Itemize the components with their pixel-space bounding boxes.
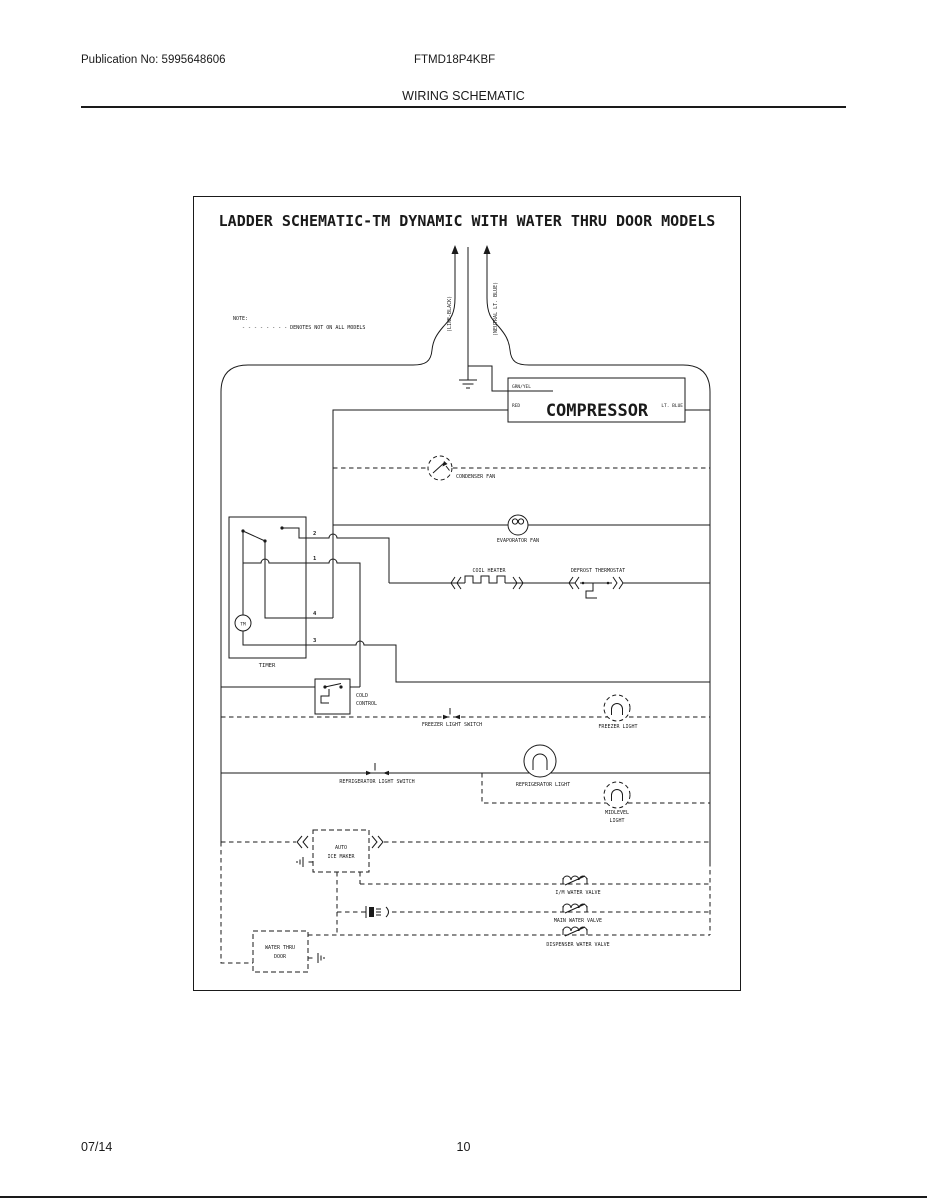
timer-box — [229, 517, 306, 658]
water-thru-door-label-1: WATER THRU — [265, 945, 295, 951]
switch-arrow-icon — [366, 771, 372, 775]
left-rail-dashed — [221, 842, 253, 963]
capillary-icon — [321, 689, 329, 703]
diagram-frame — [194, 197, 741, 991]
neutral-feed-label: (NEUTRAL LT. BLUE) — [493, 282, 499, 336]
note: NOTE: - - - - - - - - DENOTES NOT ON ALL… — [233, 316, 365, 331]
main-water-valve: MAIN WATER VALVE — [337, 904, 710, 924]
line-feed-wire — [221, 251, 455, 392]
note-text: - - - - - - - - DENOTES NOT ON ALL MODEL… — [242, 325, 365, 331]
midlevel-light-label-1: MIDLEVEL — [605, 810, 629, 816]
header-rule — [81, 106, 846, 108]
wiring-schematic-diagram: LADDER SCHEMATIC-TM DYNAMIC WITH WATER T… — [193, 196, 741, 991]
condenser-fan-motor-icon — [428, 456, 452, 480]
condenser-fan: CONDENSER FAN — [333, 456, 710, 480]
im-water-valve: I/M WATER VALVE — [360, 876, 710, 896]
cold-control-label-2: CONTROL — [356, 701, 377, 707]
water-thru-door-label-2: DOOR — [274, 954, 287, 960]
ice-maker-circuit: AUTO ICE MAKER — [221, 830, 710, 935]
plug-connector-icon — [366, 906, 389, 918]
water-thru-door: WATER THRU DOOR — [253, 931, 324, 972]
lt-blue-label: LT. BLUE — [661, 403, 683, 409]
cold-control: COLD CONTROL — [221, 679, 377, 714]
diagram-title: LADDER SCHEMATIC-TM DYNAMIC WITH WATER T… — [219, 212, 716, 230]
valve-coil-icon — [563, 876, 587, 885]
refrigerator-light-lamp-icon — [524, 745, 556, 777]
note-label: NOTE: — [233, 316, 248, 322]
main-valve-label: MAIN WATER VALVE — [554, 918, 602, 924]
page-number: 10 — [0, 1140, 927, 1154]
cold-control-label-1: COLD — [356, 693, 368, 699]
cold-control-arm — [325, 684, 341, 688]
neutral-feed-wire — [487, 251, 710, 392]
model-number: FTMD18P4KBF — [414, 54, 495, 66]
terminal-3: 3 — [313, 638, 316, 644]
connector-icon — [613, 577, 623, 589]
cold-control-dot — [339, 685, 342, 688]
timer-line-2 — [282, 528, 389, 583]
midlevel-light-lamp-icon — [604, 782, 630, 808]
midlevel-light-label-2: LIGHT — [609, 818, 624, 824]
page-bottom-edge — [0, 1196, 927, 1198]
switch-arrow-icon — [383, 771, 389, 775]
refrigerator-light-switch-label: REFRIGERATOR LIGHT SWITCH — [339, 779, 414, 785]
switch-arrow-icon — [443, 715, 449, 719]
switch-arrow-icon — [454, 715, 460, 719]
publication-number: Publication No: 5995648606 — [81, 54, 226, 66]
midlevel-branch — [482, 773, 710, 803]
terminal-4: 4 — [313, 611, 317, 617]
ice-maker-label-2: ICE MAKER — [327, 854, 355, 860]
timer-label: TIMER — [259, 663, 276, 669]
section-title: WIRING SCHEMATIC — [0, 89, 927, 103]
line-feed-label: (LINE-BLACK) — [447, 296, 453, 332]
red-bus — [333, 410, 508, 618]
refrigerator-light-circuit: REFRIGERATOR LIGHT SWITCH REFRIGERATOR L… — [221, 745, 710, 788]
connector-icon — [372, 836, 383, 848]
red-label: RED — [512, 403, 520, 409]
ice-maker-box — [313, 830, 369, 872]
refrigerator-light-label: REFRIGERATOR LIGHT — [516, 782, 570, 788]
timer-switch-arm — [243, 531, 265, 541]
timer: TM TIMER 2 1 4 3 — [229, 517, 317, 669]
dispenser-valve-label: DISPENSER WATER VALVE — [546, 942, 609, 948]
ground-icon — [318, 953, 324, 963]
evaporator-fan: EVAPORATOR FAN — [333, 515, 710, 544]
evaporator-fan-motor-icon — [508, 515, 528, 535]
power-feeds: (LINE-BLACK) (NEUTRAL LT. BLUE) — [221, 245, 710, 392]
midlevel-light-circuit: MIDLEVEL LIGHT — [482, 773, 710, 824]
terminal-1: 1 — [313, 556, 317, 562]
freezer-light-lamp-icon — [604, 695, 630, 721]
evaporator-fan-label: EVAPORATOR FAN — [497, 538, 539, 544]
coil-heater-icon — [465, 576, 505, 583]
valve-coil-icon — [563, 904, 587, 913]
compressor-label: COMPRESSOR — [546, 401, 649, 421]
ground-icon — [459, 380, 477, 388]
thermostat-dot — [607, 582, 610, 585]
coil-heater-label: COIL HEATER — [472, 568, 506, 574]
timer-line-4 — [265, 541, 333, 618]
freezer-light-switch-label: FREEZER LIGHT SWITCH — [422, 722, 482, 728]
freezer-light-circuit: FREEZER LIGHT SWITCH FREEZER LIGHT — [221, 695, 710, 730]
connector-icon — [297, 836, 308, 848]
compressor: GRN/YEL RED LT. BLUE COMPRESSOR — [468, 366, 710, 422]
ground-icon — [297, 857, 303, 867]
defrost-circuit: COIL HEATER DEFROST THERMOSTAT — [389, 568, 710, 598]
defrost-thermostat-icon — [580, 583, 612, 598]
cold-control-box — [315, 679, 350, 714]
freezer-light-label: FREEZER LIGHT — [598, 724, 637, 730]
water-thru-door-box — [253, 931, 308, 972]
timer-motor-label: TM — [240, 622, 246, 628]
im-valve-label: I/M WATER VALVE — [555, 890, 600, 896]
defrost-thermostat-label: DEFROST THERMOSTAT — [571, 568, 625, 574]
dispenser-water-valve: DISPENSER WATER VALVE — [308, 927, 710, 948]
grn-yel-label: GRN/YEL — [512, 384, 531, 390]
terminal-2: 2 — [313, 531, 316, 537]
condenser-fan-label: CONDENSER FAN — [456, 474, 495, 480]
ice-maker-label-1: AUTO — [335, 845, 347, 851]
